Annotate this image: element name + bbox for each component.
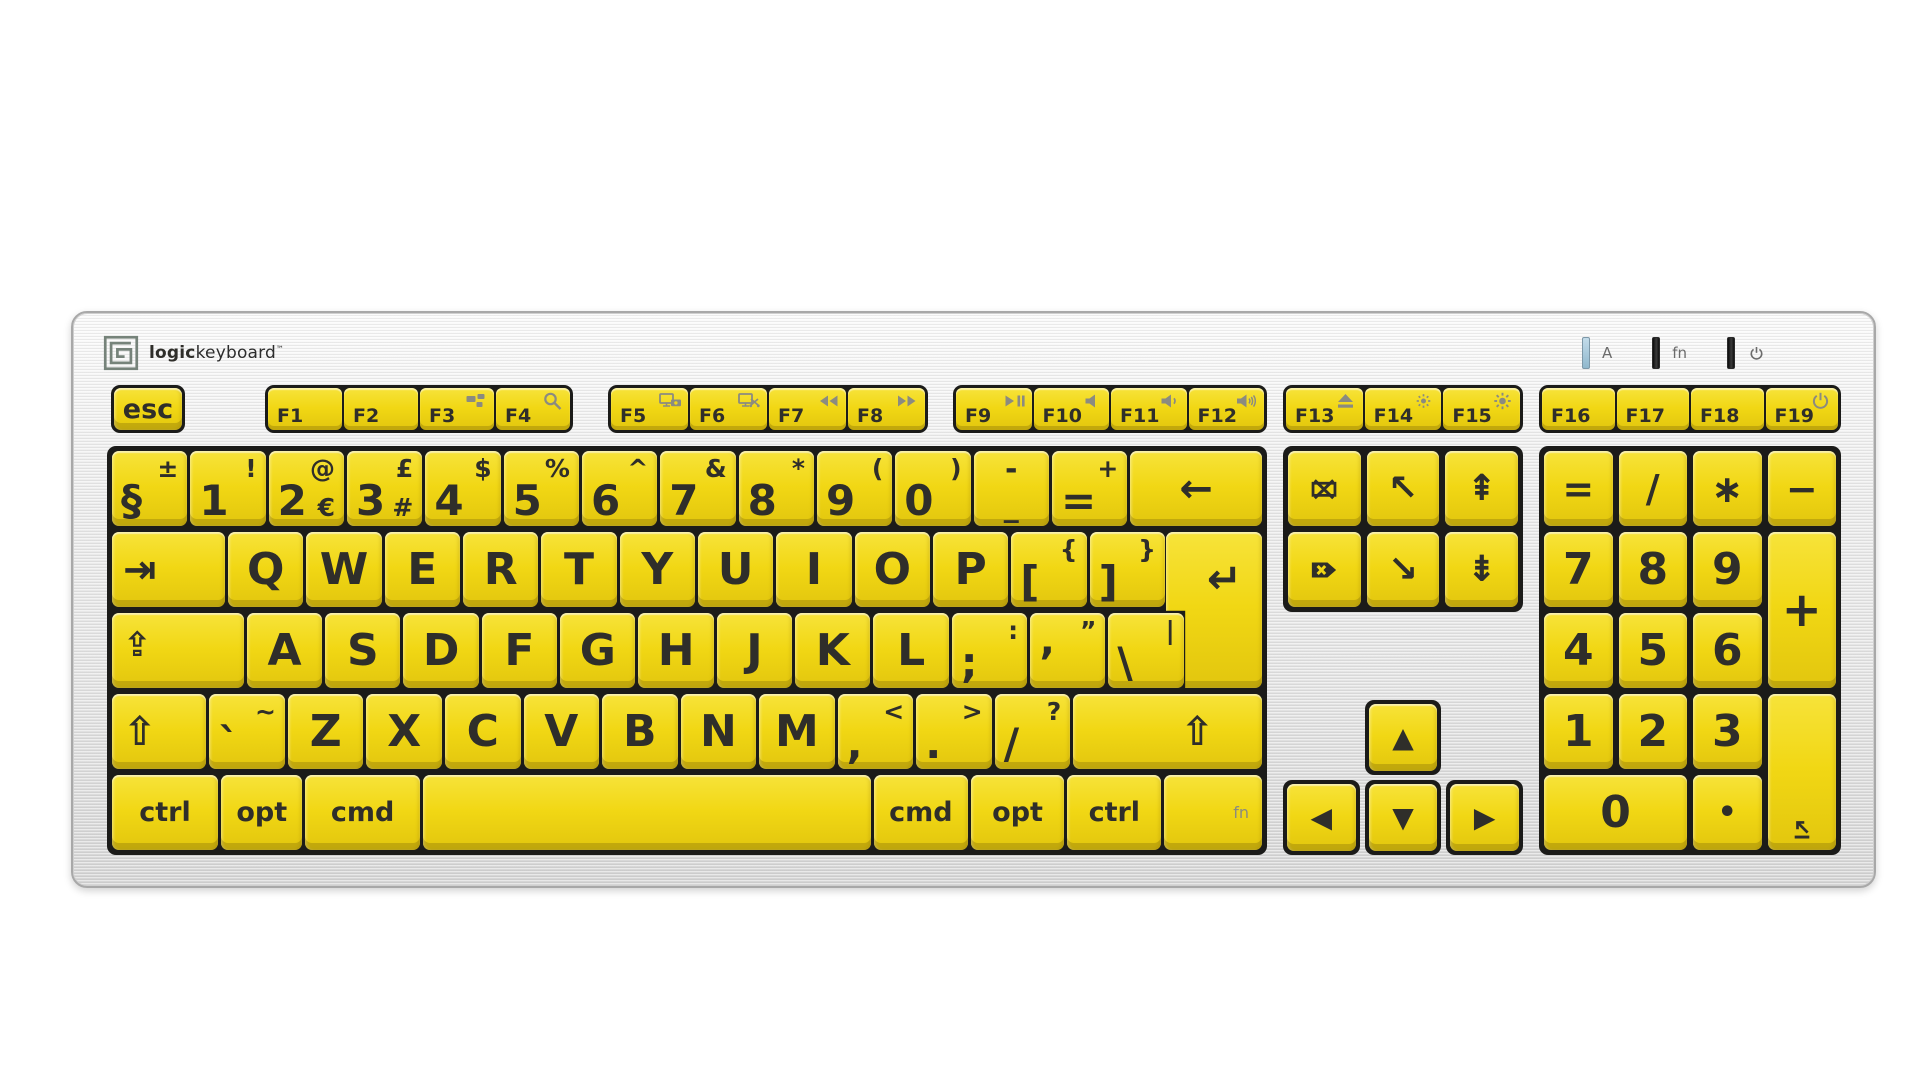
key-u[interactable]: U xyxy=(698,532,773,607)
key-i[interactable]: I xyxy=(776,532,851,607)
function-row-numpad: F16F17F18F19 xyxy=(1539,385,1841,433)
key-backspace[interactable]: ← xyxy=(1130,451,1262,526)
key-row-4: ⇧~`ZXCVBNM<,>.?/⇧ xyxy=(112,694,1262,769)
keycap: M xyxy=(759,694,835,769)
key-bracket-close[interactable]: }] xyxy=(1090,532,1165,607)
key-f8[interactable]: F8 xyxy=(848,388,925,430)
keycap: T xyxy=(541,532,616,607)
key-f9[interactable]: F9 xyxy=(956,388,1032,430)
home-icon: ↖ xyxy=(1388,471,1418,507)
keycap: F19 xyxy=(1766,388,1839,430)
key-option-right[interactable]: opt xyxy=(971,775,1065,850)
numpad-0[interactable]: 0 xyxy=(1544,775,1687,850)
key-arrow-up[interactable]: ▲ xyxy=(1369,704,1438,771)
key-legend: 6 xyxy=(591,480,620,522)
keycap: ^6 xyxy=(582,451,657,526)
key-f1[interactable]: F1 xyxy=(268,388,342,430)
key-legend: F xyxy=(504,629,534,673)
key-shift-legend: < xyxy=(883,699,904,724)
key-legend: X xyxy=(387,710,421,754)
numpad-8[interactable]: 8 xyxy=(1619,532,1688,607)
keycap: F13 xyxy=(1286,388,1363,430)
key-o[interactable]: O xyxy=(855,532,930,607)
keycap: ▼ xyxy=(1369,784,1438,851)
key-shift-legend: ± xyxy=(157,456,178,481)
key-r[interactable]: R xyxy=(463,532,538,607)
keycap: O xyxy=(855,532,930,607)
key-legend: 0 xyxy=(1600,791,1631,835)
status-indicators: Afn xyxy=(1582,337,1766,369)
keycap: = xyxy=(1544,451,1613,526)
key-area: esc F1F2F3F4 F5F6F7F8 F9F10F11F12 ±§!1@2… xyxy=(107,385,1840,855)
key-alt-legend: # xyxy=(392,495,413,520)
key-f13[interactable]: F13 xyxy=(1286,388,1363,430)
keycap: C xyxy=(445,694,521,769)
numpad-5[interactable]: 5 xyxy=(1619,613,1688,688)
key-legend: _ xyxy=(1004,492,1019,522)
key-control-left[interactable]: ctrl xyxy=(112,775,218,850)
key-legend: 3 xyxy=(356,480,385,522)
numpad-6[interactable]: 6 xyxy=(1693,613,1762,688)
key-legend: ; xyxy=(961,642,978,684)
key-arrow-left[interactable]: ◀ xyxy=(1287,784,1356,851)
key-legend: . xyxy=(925,723,941,765)
key-slash[interactable]: ?/ xyxy=(995,694,1071,769)
key-v[interactable]: V xyxy=(524,694,600,769)
key-row-2: ⇥QWERTYUIOP{[}] xyxy=(112,532,1262,607)
key-shift-left[interactable]: ⇧ xyxy=(112,694,206,769)
key-legend: F16 xyxy=(1551,407,1590,426)
keycap: esc xyxy=(114,388,182,430)
key-legend: F2 xyxy=(353,407,379,426)
key-legend: 1 xyxy=(199,480,228,522)
keycap: ⇟ xyxy=(1445,532,1518,607)
arrow-key-plate: ◀ xyxy=(1283,780,1360,855)
keycap: ⇧ xyxy=(1073,694,1262,769)
keycap: F5 xyxy=(611,388,688,430)
key-9[interactable]: (9 xyxy=(817,451,892,526)
key-semicolon[interactable]: :; xyxy=(952,613,1027,688)
keycap: V xyxy=(524,694,600,769)
keycap: £3# xyxy=(347,451,422,526)
keycap: F6 xyxy=(690,388,767,430)
key-legend: F9 xyxy=(965,407,991,426)
key-legend: ’ xyxy=(1039,642,1055,684)
main-section: esc F1F2F3F4 F5F6F7F8 F9F10F11F12 ±§!1@2… xyxy=(107,385,1267,855)
key-shift-legend: ? xyxy=(1047,699,1062,724)
keycap: ~` xyxy=(209,694,285,769)
main-key-block: ±§!1@2€£3#$4%5^6&7*8(9)0-_+=←⇥QWERTYUIOP… xyxy=(107,446,1267,855)
key-home[interactable]: ↖ xyxy=(1367,451,1440,526)
key-legend: opt xyxy=(992,799,1043,826)
keycap: ⇪ xyxy=(112,613,244,688)
screen-scissors-icon xyxy=(737,391,762,411)
keycap: E xyxy=(385,532,460,607)
key-legend: opt xyxy=(236,799,287,826)
key-f14[interactable]: F14 xyxy=(1365,388,1442,430)
key-legend: F13 xyxy=(1295,407,1334,426)
key-f12[interactable]: F12 xyxy=(1189,388,1265,430)
numpad-1[interactable]: 1 xyxy=(1544,694,1613,769)
key-5[interactable]: %5 xyxy=(504,451,579,526)
keycap: cmd xyxy=(874,775,968,850)
keycap: ◀ xyxy=(1287,784,1356,851)
key-f5[interactable]: F5 xyxy=(611,388,688,430)
keycap: Q xyxy=(228,532,303,607)
key-quote[interactable]: ”’ xyxy=(1030,613,1105,688)
key-legend: ctrl xyxy=(1089,799,1140,826)
keycap: Z xyxy=(288,694,364,769)
key-legend: 0 xyxy=(904,480,933,522)
play-pause-icon xyxy=(1002,391,1027,411)
keycap: ↖ xyxy=(1367,451,1440,526)
key-legend: ∗ xyxy=(1711,470,1743,508)
key-pageup[interactable]: ⇞ xyxy=(1445,451,1518,526)
keycap: F14 xyxy=(1365,388,1442,430)
key-j[interactable]: J xyxy=(717,613,792,688)
keycap: P xyxy=(933,532,1008,607)
keycap: F18 xyxy=(1691,388,1764,430)
key-shift-legend: { xyxy=(1060,537,1078,562)
key-shift-legend: % xyxy=(545,456,570,481)
key-4[interactable]: $4 xyxy=(425,451,500,526)
keycap: A xyxy=(247,613,322,688)
keycap: <, xyxy=(838,694,914,769)
keycap: {[ xyxy=(1011,532,1086,607)
function-row-nav: F13F14F15 xyxy=(1283,385,1523,433)
mission-control-icon xyxy=(464,391,489,411)
key-q[interactable]: Q xyxy=(228,532,303,607)
key-legend: E xyxy=(407,548,437,592)
key-6[interactable]: ^6 xyxy=(582,451,657,526)
key-f4[interactable]: F4 xyxy=(496,388,570,430)
key-legend: fn xyxy=(1233,805,1249,821)
numpad-enter[interactable] xyxy=(1768,694,1837,850)
key-legend: Y xyxy=(641,548,673,592)
backspace-icon: ← xyxy=(1179,469,1213,509)
keycap xyxy=(1288,532,1361,607)
keycap: ctrl xyxy=(1067,775,1161,850)
power-indicator xyxy=(1727,337,1766,369)
keycap: Y xyxy=(620,532,695,607)
keycap: • xyxy=(1693,775,1762,850)
key-legend: F17 xyxy=(1626,407,1665,426)
key-legend: M xyxy=(775,710,819,754)
key-legend: F5 xyxy=(620,407,646,426)
keycap: F7 xyxy=(769,388,846,430)
key-d[interactable]: D xyxy=(403,613,478,688)
logo-maze-icon xyxy=(103,335,139,371)
nav-cluster: ↖⇞↘⇟ xyxy=(1283,446,1523,612)
key-legend: , xyxy=(847,723,863,765)
power-icon xyxy=(1747,345,1766,362)
key-shift-legend: $ xyxy=(474,456,491,481)
key-legend: 3 xyxy=(1712,710,1743,754)
numpad-9[interactable]: 9 xyxy=(1693,532,1762,607)
key-f7[interactable]: F7 xyxy=(769,388,846,430)
keycap: + xyxy=(1768,532,1837,688)
left-icon: ◀ xyxy=(1311,804,1333,832)
key-arrow-right[interactable]: ▶ xyxy=(1450,784,1519,851)
key-arrow-down[interactable]: ▼ xyxy=(1369,784,1438,851)
key-legend: H xyxy=(658,629,695,673)
keyboard: logickeyboard™ Afn esc F1F2F3F4 F5F6F7F8… xyxy=(71,311,1876,888)
key-legend: / xyxy=(1004,723,1019,765)
key-m[interactable]: M xyxy=(759,694,835,769)
key-x[interactable]: X xyxy=(366,694,442,769)
keycap: ∗ xyxy=(1693,451,1762,526)
key-shift-right[interactable]: ⇧ xyxy=(1073,694,1262,769)
keycap: ▲ xyxy=(1369,704,1438,771)
key-legend: 7 xyxy=(1563,548,1594,592)
shift-icon: ⇧ xyxy=(1181,712,1215,752)
key-legend: / xyxy=(1646,470,1660,508)
fast-forward-icon xyxy=(895,391,920,411)
key-shift-legend: £ xyxy=(396,456,413,481)
key-3[interactable]: £3# xyxy=(347,451,422,526)
key-z[interactable]: Z xyxy=(288,694,364,769)
keycap: )0 xyxy=(895,451,970,526)
key-a[interactable]: A xyxy=(247,613,322,688)
keycap: ↘ xyxy=(1367,532,1440,607)
key-legend: ctrl xyxy=(139,799,190,826)
keycap: F xyxy=(482,613,557,688)
key-f10[interactable]: F10 xyxy=(1034,388,1110,430)
keycap: F17 xyxy=(1617,388,1690,430)
key-e[interactable]: E xyxy=(385,532,460,607)
key-command-left[interactable]: cmd xyxy=(305,775,419,850)
key-legend: − xyxy=(1786,470,1818,508)
numpad-add[interactable]: + xyxy=(1768,532,1837,688)
key-period[interactable]: >. xyxy=(916,694,992,769)
key-control-right[interactable]: ctrl xyxy=(1067,775,1161,850)
key-f3[interactable]: F3 xyxy=(420,388,494,430)
keycap: %5 xyxy=(504,451,579,526)
key-legend: W xyxy=(320,548,369,592)
key-legend: J xyxy=(746,629,762,673)
keycap: 7 xyxy=(1544,532,1613,607)
keycap: F10 xyxy=(1034,388,1110,430)
numpad-subtract[interactable]: − xyxy=(1768,451,1837,526)
keycap: J xyxy=(717,613,792,688)
numpad-7[interactable]: 7 xyxy=(1544,532,1613,607)
key-shift-legend: - xyxy=(1005,455,1017,485)
key-backslash[interactable]: |\ xyxy=(1108,613,1183,688)
key-f17[interactable]: F17 xyxy=(1617,388,1690,430)
key-shift-legend: ) xyxy=(950,456,961,481)
search-icon xyxy=(540,391,565,411)
keycap: F12 xyxy=(1189,388,1265,430)
numpad-decimal[interactable]: • xyxy=(1693,775,1762,850)
keycap: 2 xyxy=(1619,694,1688,769)
key-legend: 4 xyxy=(1563,629,1594,673)
key-pagedown[interactable]: ⇟ xyxy=(1445,532,1518,607)
keycap: S xyxy=(325,613,400,688)
key-g[interactable]: G xyxy=(560,613,635,688)
key-w[interactable]: W xyxy=(306,532,381,607)
tab-icon: ⇥ xyxy=(123,550,157,590)
keycap: F16 xyxy=(1542,388,1615,430)
key-legend: I xyxy=(806,548,822,592)
numpad-4[interactable]: 4 xyxy=(1544,613,1613,688)
keycap: K xyxy=(795,613,870,688)
key-f6[interactable]: F6 xyxy=(690,388,767,430)
brightness-low-icon xyxy=(1411,391,1436,411)
key-end[interactable]: ↘ xyxy=(1367,532,1440,607)
keycap: *8 xyxy=(739,451,814,526)
key-legend: F14 xyxy=(1374,407,1413,426)
numpad-equals[interactable]: = xyxy=(1544,451,1613,526)
keycap: − xyxy=(1768,451,1837,526)
keycap: F8 xyxy=(848,388,925,430)
key-alt-legend: € xyxy=(318,495,335,520)
key-f[interactable]: F xyxy=(482,613,557,688)
key-row-1: ±§!1@2€£3#$4%5^6&7*8(9)0-_+=← xyxy=(112,451,1262,526)
key-grave[interactable]: ~` xyxy=(209,694,285,769)
fn-group-f1-f4: F1F2F3F4 xyxy=(265,385,573,433)
key-p[interactable]: P xyxy=(933,532,1008,607)
key-shift-legend: ( xyxy=(872,456,883,481)
pgdn-icon: ⇟ xyxy=(1467,552,1497,588)
key-bracket-open[interactable]: {[ xyxy=(1011,532,1086,607)
keycap: opt xyxy=(221,775,303,850)
keycap: D xyxy=(403,613,478,688)
numpad-multiply[interactable]: ∗ xyxy=(1693,451,1762,526)
key-legend: 7 xyxy=(669,480,698,522)
key-s[interactable]: S xyxy=(325,613,400,688)
key-shift-legend: > xyxy=(962,699,983,724)
end-icon: ↘ xyxy=(1388,552,1418,588)
key-f15[interactable]: F15 xyxy=(1443,388,1520,430)
key-legend: 4 xyxy=(434,480,463,522)
keycap: H xyxy=(638,613,713,688)
key-legend: N xyxy=(700,710,737,754)
key-legend: V xyxy=(544,710,578,754)
key-legend: cmd xyxy=(889,799,952,826)
keycap: / xyxy=(1619,451,1688,526)
key-equals[interactable]: += xyxy=(1052,451,1127,526)
key-command-right[interactable]: cmd xyxy=(874,775,968,850)
numpad-divide[interactable]: / xyxy=(1619,451,1688,526)
key-space[interactable] xyxy=(423,775,871,850)
key-row-3: ⇪ASDFGHJKL:;”’|\ xyxy=(112,613,1262,688)
key-legend: B xyxy=(623,710,657,754)
numpad-2[interactable]: 2 xyxy=(1619,694,1688,769)
caps-lock-indicator-label: A xyxy=(1602,344,1612,362)
keycap: &7 xyxy=(660,451,735,526)
keycap: ← xyxy=(1130,451,1262,526)
nav-section: F13F14F15 ↖⇞↘⇟ ▲◀▼▶ xyxy=(1283,385,1523,855)
key-legend: Z xyxy=(310,710,342,754)
key-f16[interactable]: F16 xyxy=(1542,388,1615,430)
key-option-left[interactable]: opt xyxy=(221,775,303,850)
key-esc[interactable]: esc xyxy=(114,388,182,430)
key-section[interactable]: ±§ xyxy=(112,451,187,526)
key-shift-legend: + xyxy=(1097,456,1118,481)
key-f18[interactable]: F18 xyxy=(1691,388,1764,430)
key-capslock[interactable]: ⇪ xyxy=(112,613,244,688)
key-shift-legend: * xyxy=(792,456,805,481)
keycap: ±§ xyxy=(112,451,187,526)
return-icon: ↵ xyxy=(1207,558,1242,600)
key-2[interactable]: @2€ xyxy=(269,451,344,526)
up-icon: ▲ xyxy=(1392,724,1414,752)
keycap: F3 xyxy=(420,388,494,430)
key-shift-legend: : xyxy=(1008,618,1018,643)
key-tab[interactable]: ⇥ xyxy=(112,532,225,607)
keycap: -_ xyxy=(974,451,1049,526)
key-legend: • xyxy=(1718,798,1737,828)
key-l[interactable]: L xyxy=(873,613,948,688)
key-row-5: ctrloptcmdcmdoptctrlfn xyxy=(112,775,1262,850)
key-legend: L xyxy=(897,629,925,673)
key-legend: = xyxy=(1562,470,1594,508)
keycap: I xyxy=(776,532,851,607)
key-legend: D xyxy=(423,629,460,673)
key-legend: F10 xyxy=(1043,407,1082,426)
keycap xyxy=(1288,451,1361,526)
fn-group-f9-f12: F9F10F11F12 xyxy=(953,385,1267,433)
fn-group-f5-f8: F5F6F7F8 xyxy=(608,385,928,433)
key-legend: + xyxy=(1782,586,1822,634)
key-minus[interactable]: -_ xyxy=(974,451,1049,526)
key-legend: F11 xyxy=(1120,407,1159,426)
key-forward-delete[interactable] xyxy=(1288,532,1361,607)
key-8[interactable]: *8 xyxy=(739,451,814,526)
key-f19[interactable]: F19 xyxy=(1766,388,1839,430)
key-legend: = xyxy=(1061,480,1096,522)
key-legend: 9 xyxy=(1712,548,1743,592)
keycap: |\ xyxy=(1108,613,1183,688)
key-fn[interactable]: fn xyxy=(1164,775,1262,850)
key-y[interactable]: Y xyxy=(620,532,695,607)
key-k[interactable]: K xyxy=(795,613,870,688)
keycap: += xyxy=(1052,451,1127,526)
key-c[interactable]: C xyxy=(445,694,521,769)
key-legend: 2 xyxy=(1637,710,1668,754)
key-legend: \ xyxy=(1117,642,1132,684)
keycap: ”’ xyxy=(1030,613,1105,688)
esc-plate: esc xyxy=(111,385,185,433)
key-h[interactable]: H xyxy=(638,613,713,688)
key-1[interactable]: !1 xyxy=(190,451,265,526)
key-legend: 5 xyxy=(513,480,542,522)
key-comma[interactable]: <, xyxy=(838,694,914,769)
key-0[interactable]: )0 xyxy=(895,451,970,526)
arrow-key-plate: ▲ xyxy=(1365,700,1442,775)
mute-icon xyxy=(1079,391,1104,411)
key-b[interactable]: B xyxy=(602,694,678,769)
keycap: $4 xyxy=(425,451,500,526)
key-7[interactable]: &7 xyxy=(660,451,735,526)
key-clear[interactable] xyxy=(1288,451,1361,526)
keycap: 0 xyxy=(1544,775,1687,850)
keycap: G xyxy=(560,613,635,688)
key-t[interactable]: T xyxy=(541,532,616,607)
down-icon: ▼ xyxy=(1392,804,1414,832)
keycap xyxy=(1768,694,1837,850)
keycap: F4 xyxy=(496,388,570,430)
key-f11[interactable]: F11 xyxy=(1111,388,1187,430)
key-f2[interactable]: F2 xyxy=(344,388,418,430)
key-shift-legend: ” xyxy=(1080,618,1096,643)
numpad-3[interactable]: 3 xyxy=(1693,694,1762,769)
key-legend: F18 xyxy=(1700,407,1739,426)
keycap: 5 xyxy=(1619,613,1688,688)
key-legend: O xyxy=(874,548,911,592)
keycap: 8 xyxy=(1619,532,1688,607)
key-n[interactable]: N xyxy=(681,694,757,769)
